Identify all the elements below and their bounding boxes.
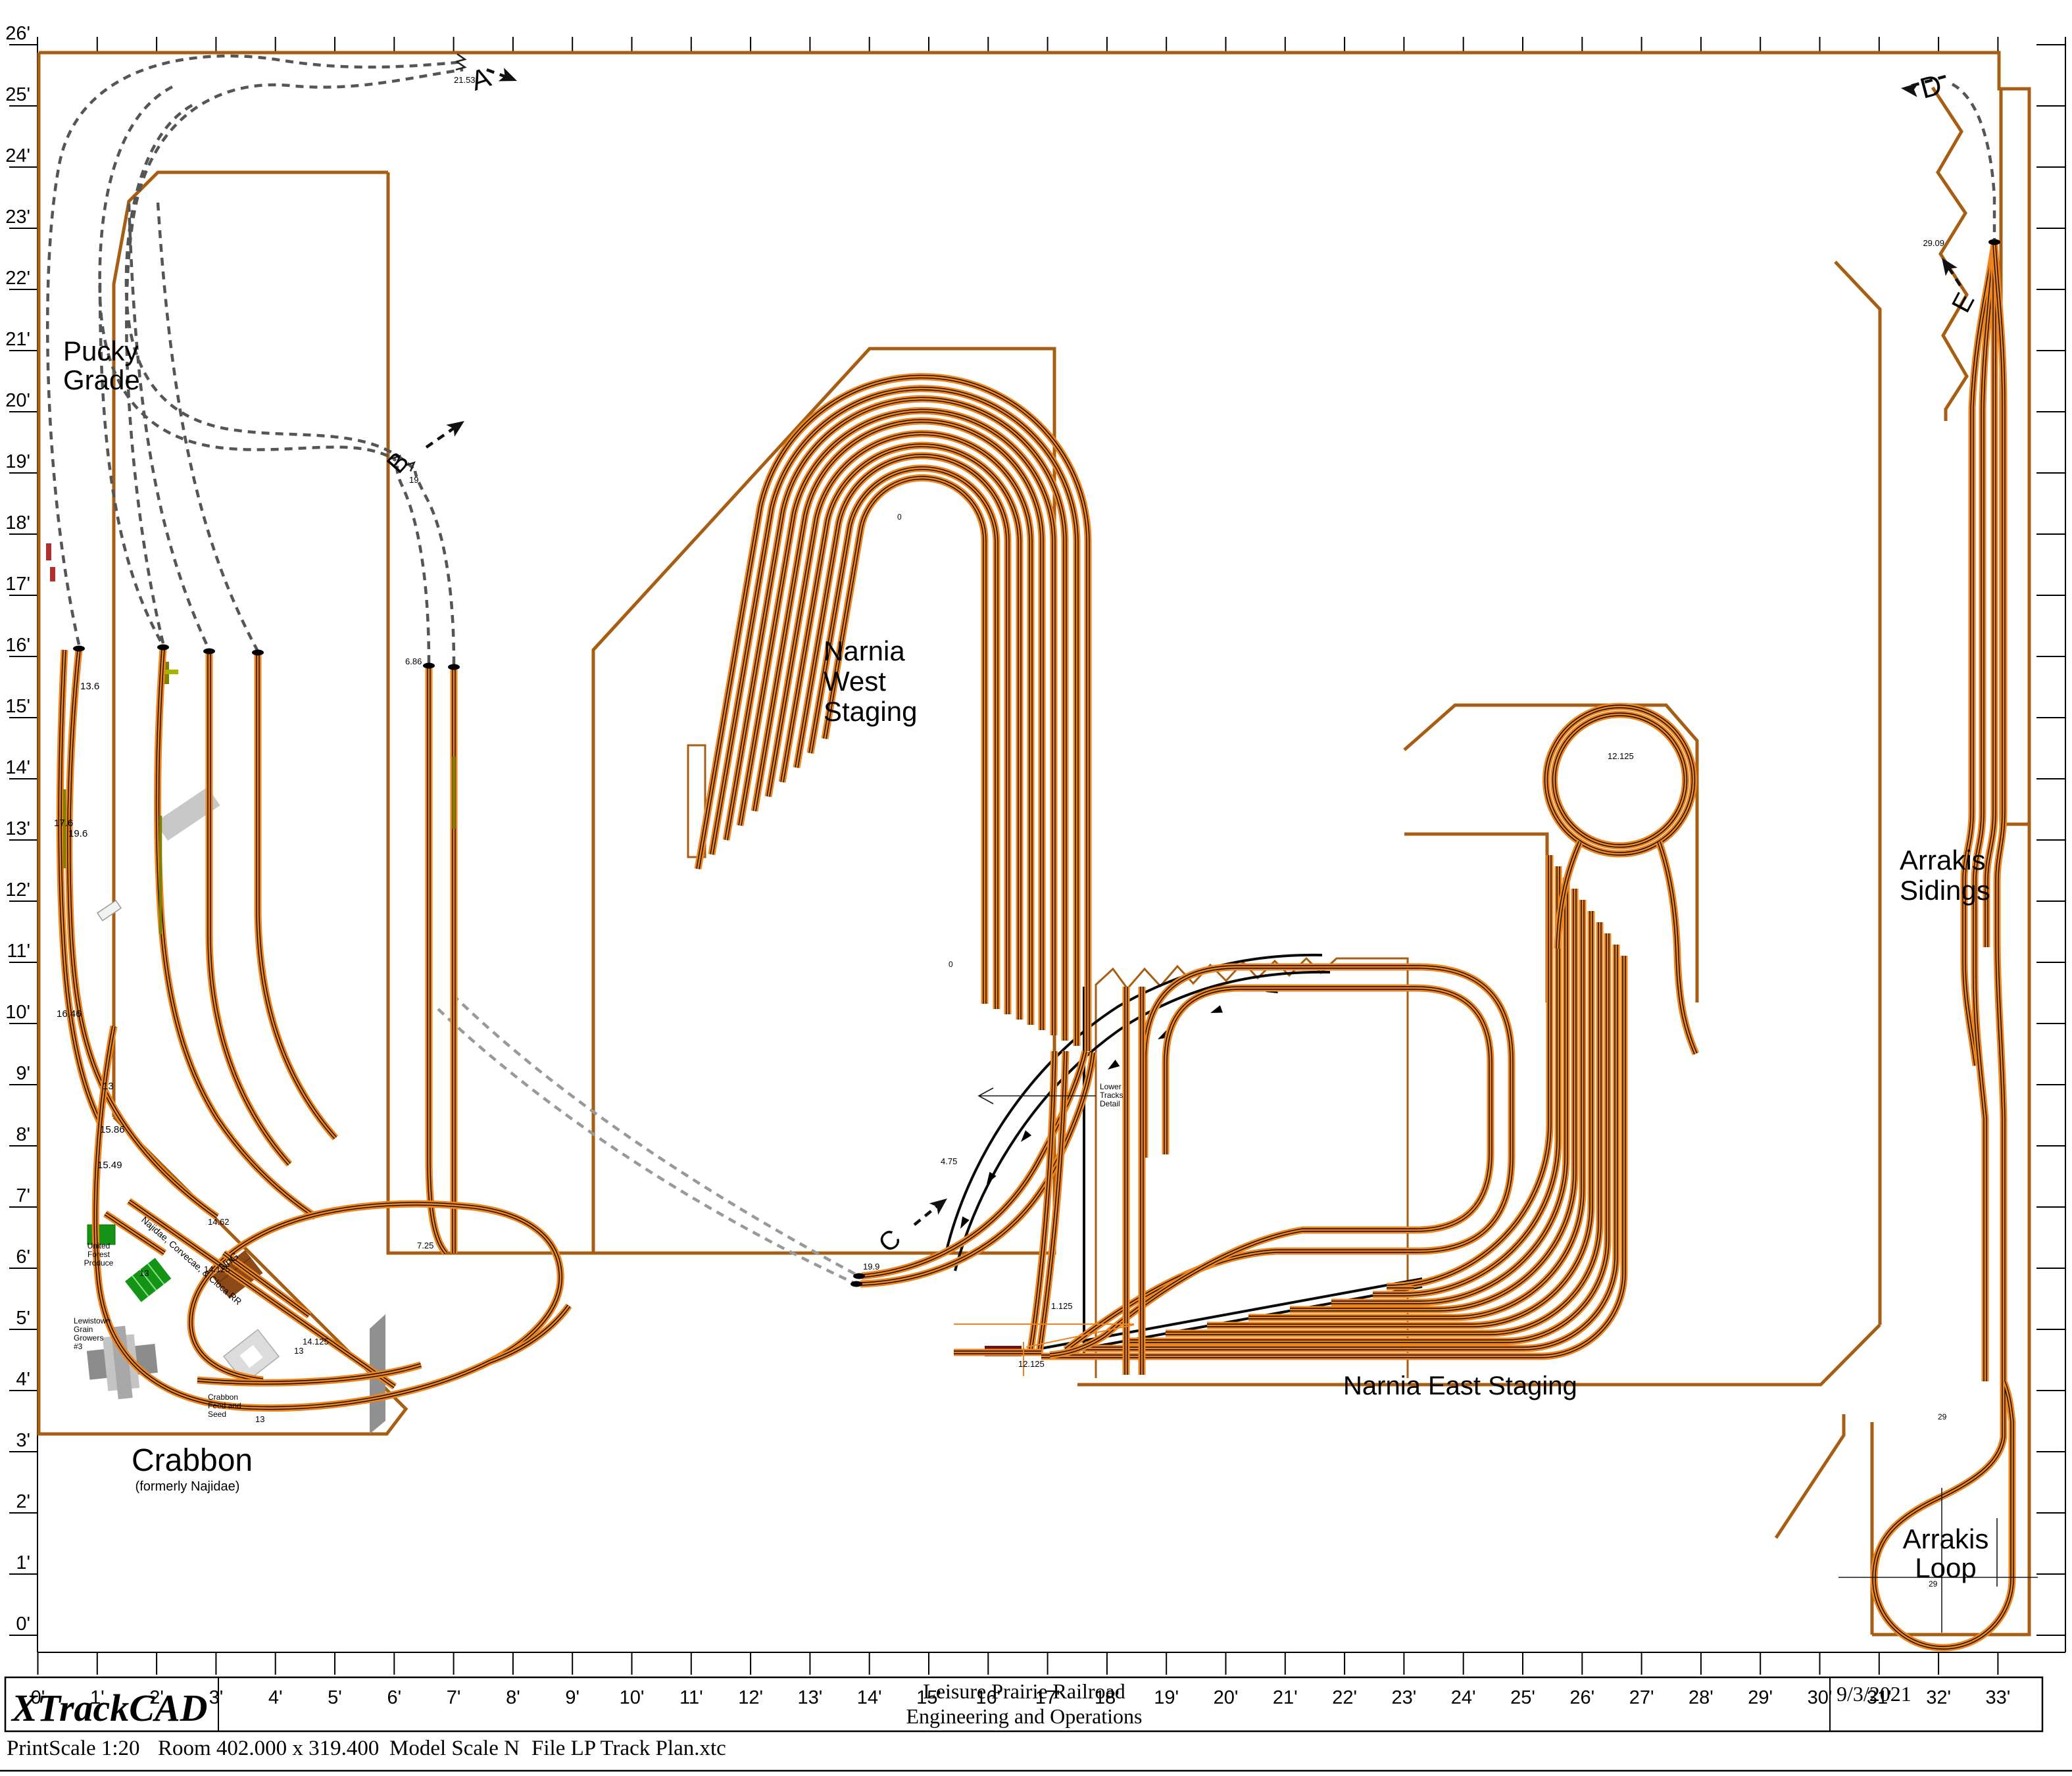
elev-p2: 17.6 — [54, 818, 73, 829]
drawing-subtitle: Engineering and Operations — [906, 1704, 1143, 1728]
bottom-ruler-label: 4' — [268, 1687, 283, 1708]
bottom-ruler-label: 27' — [1629, 1687, 1654, 1708]
bottom-ruler-label: 6' — [387, 1687, 401, 1708]
left-ruler-label: 11' — [7, 941, 30, 962]
bottom-ruler-label: 5' — [328, 1687, 342, 1708]
label-lower-tracks: Lower — [1100, 1082, 1122, 1091]
label-narnia-west-2: West — [824, 666, 886, 697]
label-united-forest: United — [87, 1241, 111, 1250]
status-print-scale: PrintScale 1:20 — [7, 1737, 140, 1760]
elev-p4: 16.46 — [57, 1008, 82, 1020]
bottom-ruler-label: 22' — [1332, 1687, 1357, 1708]
label-arrakis-sidings-2: Sidings — [1900, 875, 1990, 906]
date-field: 9/3/2021 — [1837, 1682, 1912, 1706]
left-ruler-label: 25' — [5, 84, 30, 105]
label-arrakis-sidings: Arrakis — [1900, 845, 1986, 876]
left-ruler-label: 17' — [5, 574, 30, 595]
elev-m1: 6.86 — [405, 656, 422, 666]
label-feed-seed-3: Seed — [208, 1410, 226, 1419]
left-ruler-label: 12' — [5, 879, 30, 900]
elev-c6: 13 — [255, 1414, 264, 1424]
left-ruler-label: 22' — [5, 268, 30, 289]
elev-p6: 15.86 — [100, 1124, 125, 1135]
bridge-white — [97, 900, 121, 921]
elev-p3: 19.6 — [68, 828, 87, 839]
elev-p1: 13.6 — [80, 681, 99, 692]
left-ruler-label: 21' — [5, 329, 30, 350]
bottom-ruler-label: 14' — [857, 1687, 882, 1708]
label-feed-seed-2: Feed and — [208, 1401, 241, 1410]
elev-ar2: 29 — [1929, 1579, 1938, 1589]
bottom-ruler-label: 21' — [1273, 1687, 1298, 1708]
status-line: PrintScale 1:20Room 402.000 x 319.400Mod… — [7, 1737, 726, 1760]
elev-a: 21.53 — [454, 75, 476, 85]
left-ruler-label: 6' — [16, 1246, 30, 1268]
elev-z2: 0 — [949, 960, 953, 969]
bottom-ruler-label: 30' — [1808, 1687, 1833, 1708]
label-lewistown-2: Grain — [74, 1325, 93, 1334]
track-plan-canvas: 0'1'2'3'4'5'6'7'8'9'10'11'12'13'14'15'16… — [0, 0, 2072, 1776]
elev-p5: 13 — [103, 1081, 114, 1092]
elev-c3: 13 — [139, 1268, 149, 1278]
label-crabbon: Crabbon — [132, 1443, 253, 1478]
left-ruler-label: 20' — [5, 390, 30, 411]
label-lewistown-3: Growers — [74, 1333, 103, 1343]
connector-d: D — [1917, 68, 1945, 105]
elev-z1: 0 — [897, 512, 902, 522]
label-arrakis-loop: Arrakis — [1903, 1523, 1989, 1554]
elev-p7: 15.49 — [97, 1160, 122, 1171]
bottom-ruler-label: 28' — [1689, 1687, 1714, 1708]
label-pucky-grade-2: Grade — [63, 364, 140, 395]
elev-ar1: 29 — [1938, 1412, 1947, 1421]
bottom-ruler-label: 25' — [1510, 1687, 1535, 1708]
label-feed-seed: Crabbon — [208, 1393, 238, 1402]
label-pucky-grade: Pucky — [63, 335, 138, 366]
left-ruler-label: 1' — [16, 1552, 30, 1573]
label-lower-tracks-2: Tracks — [1100, 1091, 1123, 1100]
left-ruler-label: 2' — [16, 1491, 30, 1512]
left-ruler-label: 14' — [5, 757, 30, 778]
bottom-ruler-label: 7' — [447, 1687, 461, 1708]
bottom-ruler-label: 23' — [1392, 1687, 1417, 1708]
bottom-ruler-label: 20' — [1214, 1687, 1239, 1708]
endpoint-markers — [73, 239, 2000, 1287]
visible-tracks — [46, 245, 2012, 1648]
bottom-ruler-label: 3' — [209, 1687, 224, 1708]
left-ruler-label: 16' — [5, 635, 30, 656]
left-ruler-label: 0' — [16, 1614, 30, 1635]
drawing-title: Leisure Prairie Railroad — [923, 1679, 1125, 1703]
label-narnia-east: Narnia East Staging — [1343, 1371, 1577, 1400]
left-ruler-label: 4' — [16, 1369, 30, 1390]
bottom-ruler-label: 13' — [798, 1687, 823, 1708]
label-narnia-west: Narnia — [824, 635, 905, 666]
elev-b: 19 — [409, 475, 418, 485]
status-file: File LP Track Plan.xtc — [531, 1737, 726, 1760]
bottom-ruler-label: 19' — [1154, 1687, 1179, 1708]
elev-oval: 1.125 — [1051, 1301, 1073, 1311]
elev-m2: 7.25 — [417, 1241, 433, 1250]
left-ruler-label: 13' — [5, 818, 30, 839]
bottom-ruler-label: 12' — [738, 1687, 763, 1708]
elev-c4: 14.125 — [303, 1337, 329, 1346]
elev-c: 19.9 — [863, 1262, 879, 1271]
bottom-ruler-label: 8' — [506, 1687, 520, 1708]
app-logo: XTrackCAD — [11, 1687, 208, 1729]
elev-c5: 13 — [294, 1346, 303, 1356]
left-ruler-label: 26' — [5, 23, 30, 44]
status-room: Room 402.000 x 319.400 — [158, 1737, 379, 1760]
label-arrakis-loop-2: Loop — [1915, 1552, 1976, 1583]
left-ruler-label: 15' — [5, 696, 30, 717]
bottom-ruler-label: 26' — [1569, 1687, 1594, 1708]
elev-c2: 14.125 — [204, 1264, 230, 1274]
bottom-ruler-label: 24' — [1451, 1687, 1476, 1708]
left-ruler-label: 9' — [16, 1063, 30, 1084]
rulers: 0'1'2'3'4'5'6'7'8'9'10'11'12'13'14'15'16… — [5, 23, 2065, 1708]
left-ruler-label: 5' — [16, 1308, 30, 1329]
elev-loop: 12.125 — [1608, 751, 1634, 761]
bottom-ruler-label: 9' — [565, 1687, 580, 1708]
label-lewistown: Lewistown — [74, 1316, 111, 1325]
left-ruler-label: 7' — [16, 1185, 30, 1206]
status-model-scale: Model Scale N — [389, 1737, 520, 1760]
bottom-ruler-label: 10' — [620, 1687, 645, 1708]
left-ruler-label: 19' — [5, 451, 30, 472]
elev-e: 29.09 — [1923, 238, 1944, 248]
xtrackcad-print-page: 0'1'2'3'4'5'6'7'8'9'10'11'12'13'14'15'16… — [0, 0, 2072, 1776]
left-ruler-label: 23' — [5, 207, 30, 228]
connector-labels: A B C D E — [382, 61, 1980, 1258]
left-ruler-label: 3' — [16, 1430, 30, 1451]
elev-yard: 12.125 — [1018, 1359, 1045, 1369]
elev-c1: 14.62 — [208, 1217, 230, 1227]
bottom-ruler-label: 29' — [1748, 1687, 1773, 1708]
elev-detail: 4.75 — [941, 1156, 957, 1166]
label-united-forest-2: Forest — [87, 1250, 111, 1259]
connector-e: E — [1946, 288, 1980, 317]
left-ruler-label: 18' — [5, 512, 30, 533]
left-ruler-label: 24' — [5, 145, 30, 166]
bottom-ruler-label: 11' — [679, 1687, 703, 1708]
building-green-shed — [125, 1258, 171, 1302]
left-ruler-label: 8' — [16, 1124, 30, 1145]
label-lewistown-4: #3 — [74, 1342, 83, 1351]
label-crabbon-sub: (formerly Najidae) — [136, 1479, 240, 1494]
label-narnia-west-3: Staging — [824, 696, 917, 727]
label-lower-tracks-3: Detail — [1100, 1099, 1120, 1108]
bottom-ruler-label: 32' — [1926, 1687, 1951, 1708]
left-ruler-label: 10' — [5, 1002, 30, 1023]
label-united-forest-3: Produce — [84, 1258, 114, 1268]
bottom-ruler-label: 33' — [1986, 1687, 2011, 1708]
